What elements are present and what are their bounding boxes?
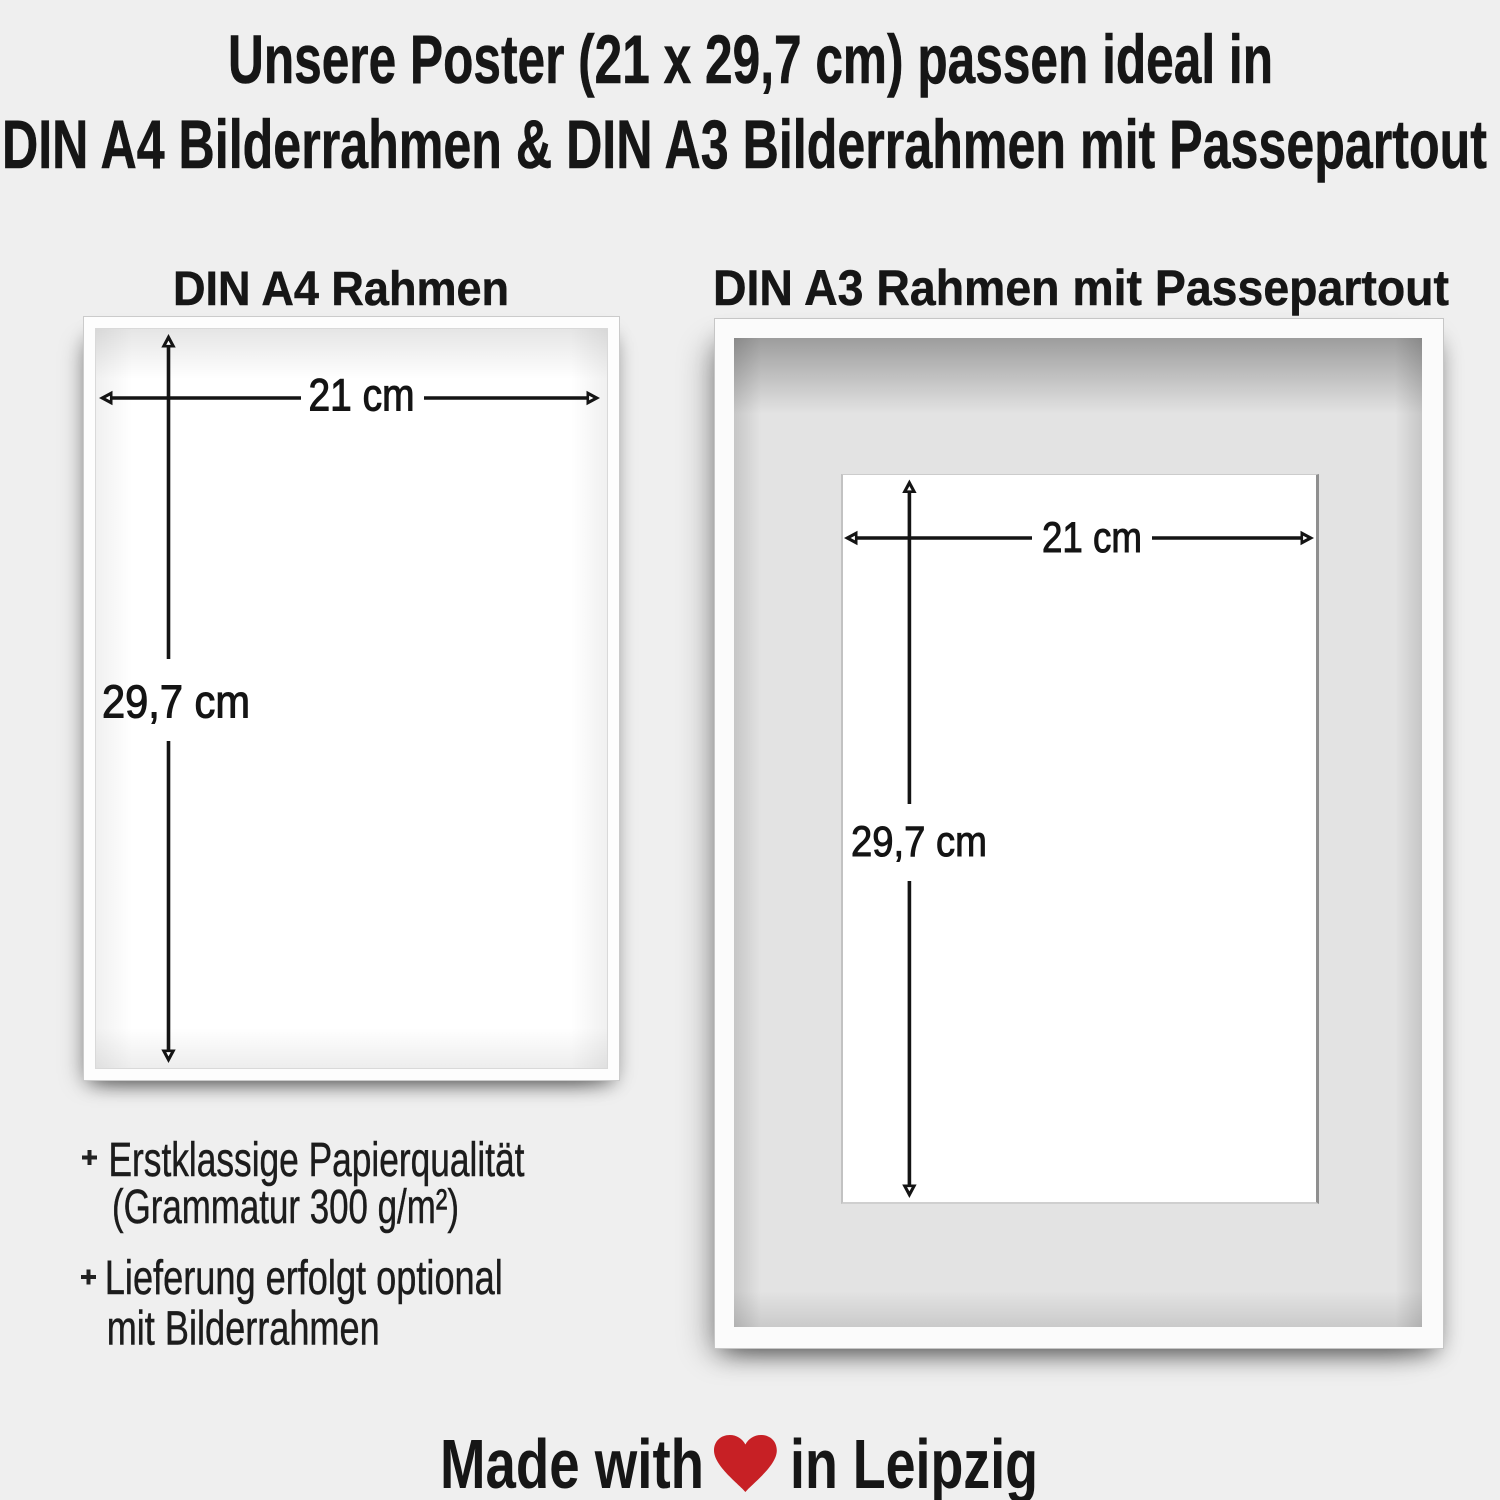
svg-text:29,7 cm: 29,7 cm <box>851 818 987 866</box>
svg-text:DIN A3 Rahmen mit Passepartout: DIN A3 Rahmen mit Passepartout <box>713 260 1449 316</box>
svg-text:29,7 cm: 29,7 cm <box>102 676 250 728</box>
svg-text:Lieferung erfolgt optional: Lieferung erfolgt optional <box>105 1252 503 1305</box>
svg-text:21 cm: 21 cm <box>309 370 415 421</box>
svg-text:21 cm: 21 cm <box>1042 514 1142 562</box>
svg-text:DIN A4 Bilderrahmen & DIN A3 B: DIN A4 Bilderrahmen & DIN A3 Bilderrahme… <box>2 106 1487 183</box>
svg-text:Made with: Made with <box>440 1425 704 1500</box>
svg-text:mit Bilderrahmen: mit Bilderrahmen <box>107 1303 380 1356</box>
svg-text:DIN A4 Rahmen: DIN A4 Rahmen <box>173 263 509 316</box>
svg-text:in Leipzig: in Leipzig <box>790 1425 1038 1500</box>
svg-text:(Grammatur 300 g/m²): (Grammatur 300 g/m²) <box>112 1181 459 1234</box>
svg-text:Erstklassige Papierqualität: Erstklassige Papierqualität <box>109 1134 525 1187</box>
svg-text:Unsere Poster (21 x 29,7 cm) p: Unsere Poster (21 x 29,7 cm) passen idea… <box>228 21 1273 98</box>
